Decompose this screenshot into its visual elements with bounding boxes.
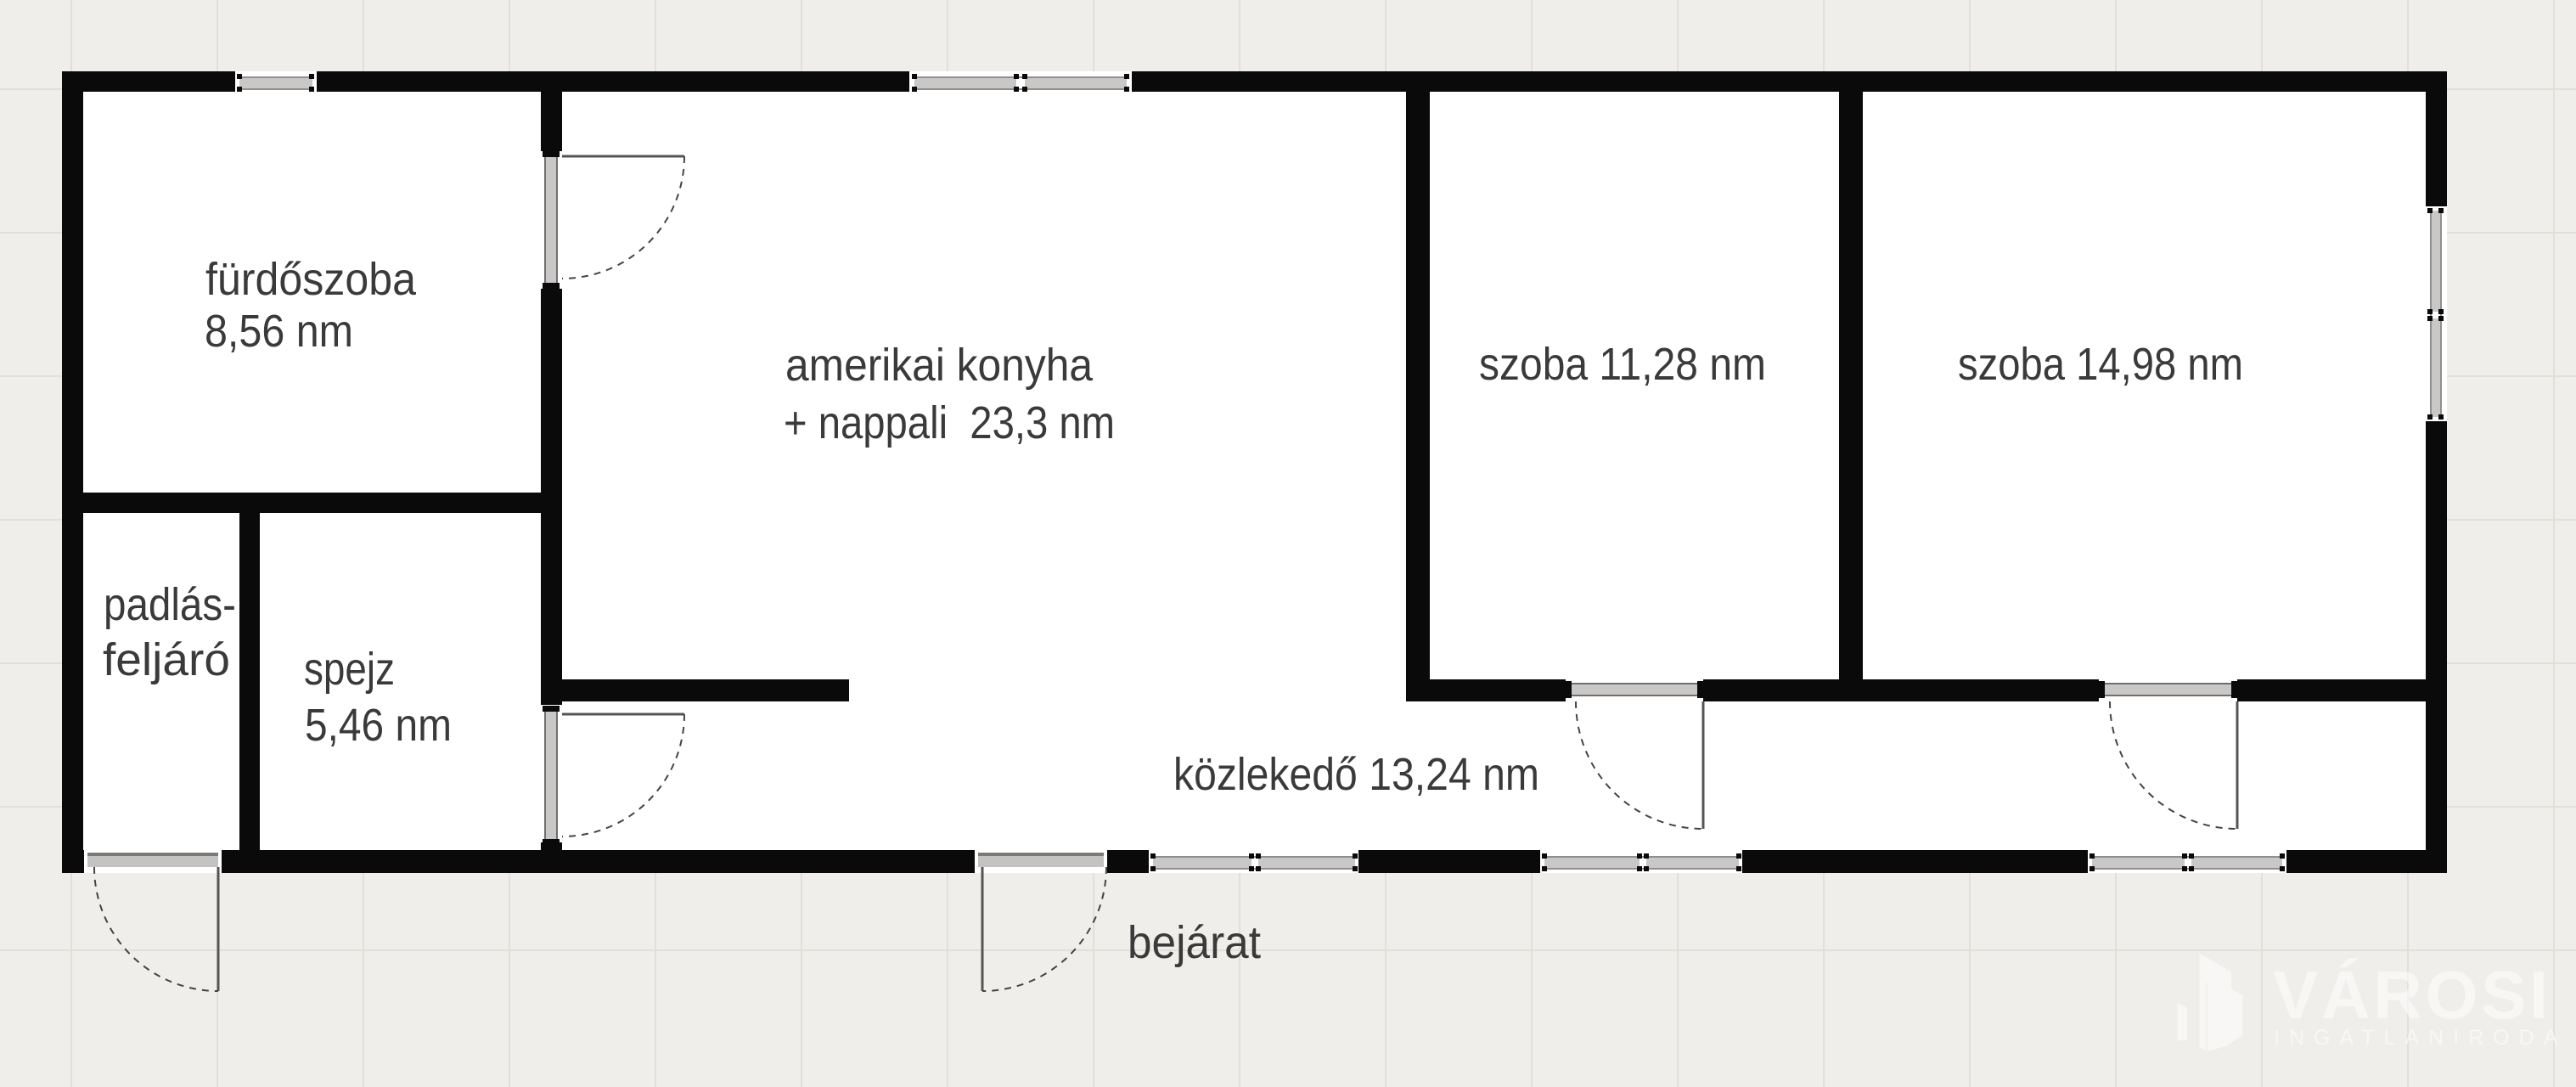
svg-text:8,56 nm: 8,56 nm	[205, 306, 353, 357]
svg-text:közlekedő 13,24 nm: közlekedő 13,24 nm	[1173, 749, 1539, 800]
svg-text:VÁROSI: VÁROSI	[2273, 957, 2551, 1033]
svg-text:spejz: spejz	[304, 644, 395, 695]
svg-text:fürdőszoba: fürdőszoba	[205, 254, 417, 305]
svg-text:szoba 14,98 nm: szoba 14,98 nm	[1958, 339, 2243, 390]
svg-text:5,46 nm: 5,46 nm	[305, 700, 452, 751]
svg-text:bejárat: bejárat	[1128, 917, 1261, 968]
svg-text:+ nappali 23,3 nm: + nappali 23,3 nm	[784, 397, 1115, 448]
svg-text:szoba 11,28 nm: szoba 11,28 nm	[1479, 339, 1766, 390]
svg-text:amerikai konyha: amerikai konyha	[785, 340, 1094, 391]
svg-text:padlás-: padlás-	[104, 579, 236, 630]
svg-text:INGATLANIRODA: INGATLANIRODA	[2274, 1026, 2567, 1050]
svg-text:feljáró: feljáró	[103, 634, 230, 685]
